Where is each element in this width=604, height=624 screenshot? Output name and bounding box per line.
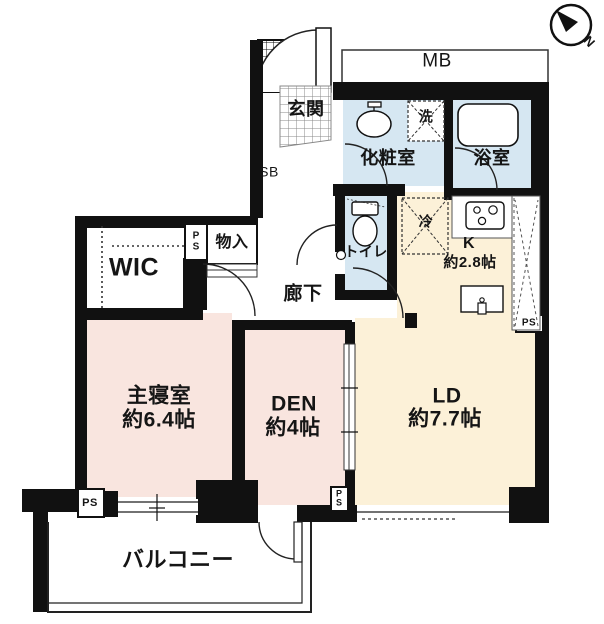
- den-ld-sliding-door: [341, 344, 358, 470]
- balcony-railing: [48, 522, 311, 612]
- wall-outer-bottom-left: [22, 489, 79, 512]
- entry-door-leaf: [316, 28, 331, 92]
- wall-bedroom-den-divider: [232, 320, 245, 497]
- bedroom-floor: [87, 320, 232, 497]
- wic-hanger-lines: [102, 226, 184, 308]
- floor-plan: N MB 玄関 SB 化粧室 洗 浴室 トイレ 冷 K 約2.8帖 廊下 WIC…: [0, 0, 604, 624]
- ld-window: [357, 505, 509, 522]
- toilet-door-arc: [297, 225, 337, 265]
- ps-box-den: [331, 487, 348, 511]
- kitchen-sink-icon: [461, 286, 503, 314]
- ps-box-top: [185, 224, 207, 260]
- washer-box-icon: [408, 101, 444, 141]
- wall-corridor-left: [250, 40, 263, 218]
- bedroom-door-floor: [203, 313, 232, 320]
- wall-toilet-bottom: [335, 290, 397, 300]
- genkan-tiles: [280, 86, 331, 147]
- entrance-area: [256, 28, 331, 147]
- wall-kitchen-right: [540, 195, 549, 332]
- den-floor: [245, 330, 345, 505]
- wall-right-top: [531, 100, 549, 195]
- closet-box: [207, 224, 257, 264]
- wall-den-top: [232, 320, 352, 330]
- wall-ld-door-jamb: [405, 313, 417, 328]
- wall-powder-bottom: [333, 184, 405, 196]
- floor-plan-drawing: [0, 0, 604, 624]
- wall-balcony-left: [33, 512, 48, 612]
- wall-ps-block: [183, 258, 207, 310]
- north-compass: [551, 5, 591, 45]
- wall-left-outer: [75, 228, 87, 497]
- meter-box-outline: [342, 50, 548, 82]
- stove-icon: [452, 196, 514, 238]
- balcony-door-arc: [259, 522, 296, 559]
- wall-den-ld-top: [345, 322, 355, 344]
- kitchen-counter: [512, 196, 540, 330]
- wall-bottom-right: [509, 505, 548, 522]
- wall-bottom-mid: [297, 505, 359, 522]
- ps-box-bottom-left: [78, 489, 104, 517]
- wall-toilet-left-top: [335, 196, 345, 252]
- living-dining-floor: [355, 318, 535, 505]
- wall-ld-right: [535, 332, 549, 492]
- wall-powder-bath-divider: [444, 100, 453, 192]
- wall-ps-to-window: [103, 491, 118, 512]
- wall-toilet-right: [387, 196, 397, 300]
- wall-top: [333, 82, 549, 100]
- wall-bottom-center-block: [196, 480, 258, 523]
- balcony-door-leaf: [294, 522, 302, 562]
- bathtub-icon: [458, 104, 518, 146]
